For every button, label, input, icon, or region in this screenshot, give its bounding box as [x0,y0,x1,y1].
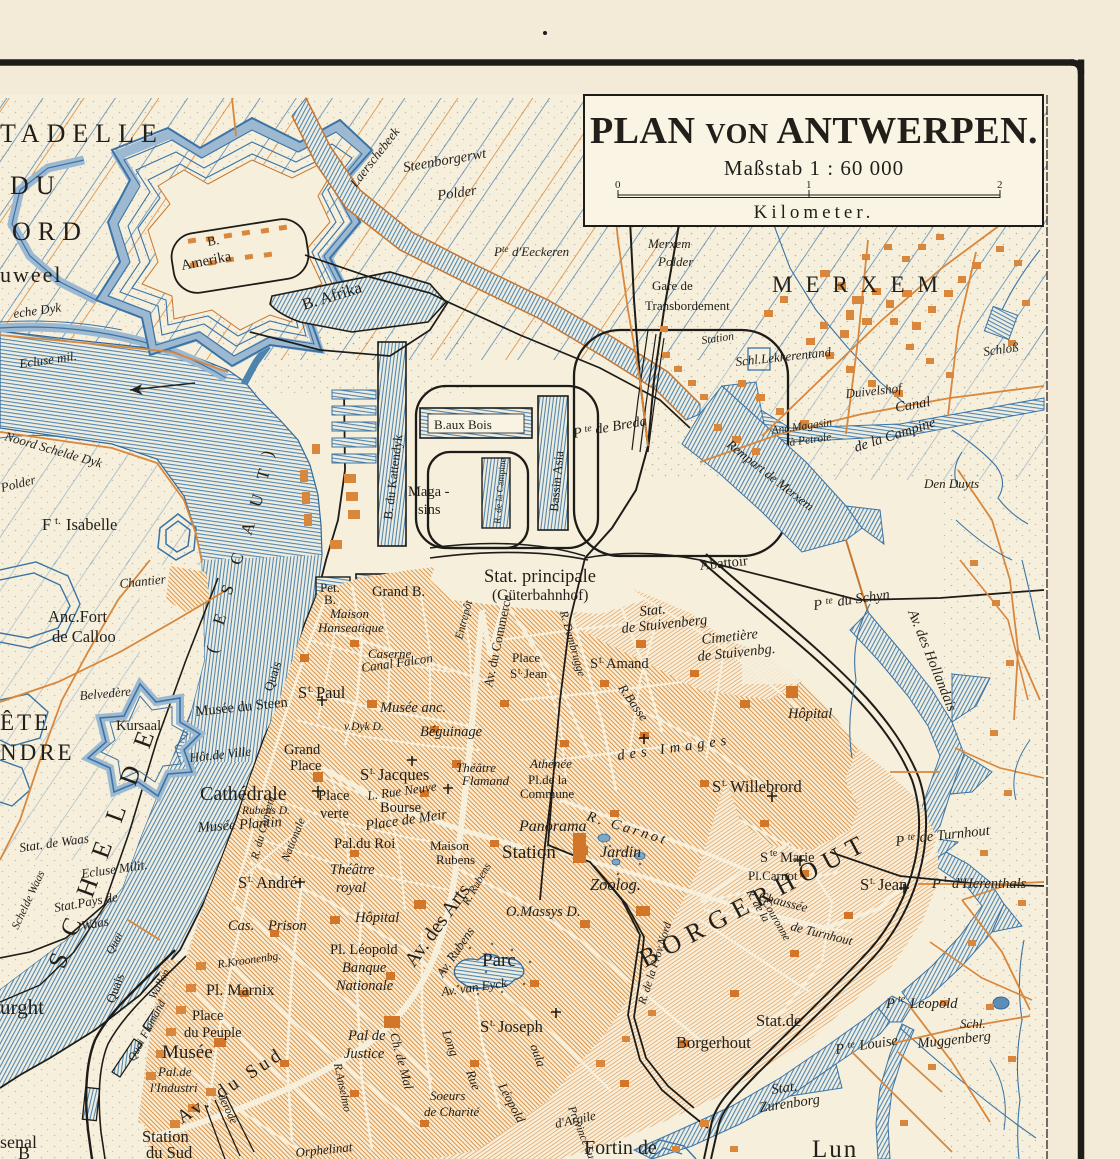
svg-text:Grand: Grand [284,742,321,758]
svg-text:B.aux Bois: B.aux Bois [434,417,492,432]
svg-text:Place: Place [318,788,349,804]
svg-text:Stat.de: Stat.de [756,1011,801,1030]
svg-text:Musée: Musée [162,1042,213,1063]
svg-text:Pal.de: Pal.de [157,1064,192,1079]
svg-text:Station: Station [502,842,556,863]
svg-text:t.: t. [518,666,523,676]
svg-text:Hôpital: Hôpital [354,910,399,926]
svg-text:du Sud: du Sud [146,1143,193,1159]
svg-text:ORD: ORD [12,217,88,246]
svg-text:1: 1 [806,179,812,191]
svg-text:de Charité: de Charité [424,1104,480,1119]
svg-text:t.: t. [599,655,604,666]
svg-text:d'Herenthals: d'Herenthals [952,876,1027,892]
svg-text:Amand: Amand [606,656,649,672]
svg-text:Place: Place [290,758,321,774]
svg-text:Béguinage: Béguinage [420,724,483,740]
svg-text:Parc: Parc [482,950,516,971]
svg-text:ÊTE: ÊTE [0,710,51,735]
svg-text:MERXEM: MERXEM [772,272,951,297]
svg-text:Jean: Jean [878,875,907,894]
svg-text:Transbordement: Transbordement [645,298,730,313]
svg-text:S: S [480,1017,489,1036]
svg-text:Banque: Banque [342,960,387,976]
svg-text:Maßstab 1 : 60 000: Maßstab 1 : 60 000 [724,156,904,180]
svg-text:verte: verte [320,806,349,822]
svg-text:Den Duyts: Den Duyts [923,476,979,491]
svg-text:DU: DU [10,171,62,200]
svg-text:urght: urght [0,995,44,1019]
svg-text:d'Eeckeren: d'Eeckeren [512,244,569,259]
svg-text:Athénée: Athénée [529,756,572,771]
svg-text:Maga -: Maga - [408,484,450,500]
svg-text:t.: t. [944,874,949,885]
svg-text:t.: t. [490,1018,495,1029]
svg-text:l'Industri: l'Industri [150,1080,198,1095]
svg-text:Grand B.: Grand B. [372,584,425,600]
svg-text:Isabelle: Isabelle [66,515,117,534]
svg-text:sins: sins [418,502,441,518]
svg-text:Panorama: Panorama [518,818,587,835]
svg-text:t.: t. [370,766,375,777]
svg-text:uweel: uweel [0,262,63,287]
svg-text:Place: Place [192,1008,223,1024]
svg-text:Musée anc.: Musée anc. [379,700,446,716]
svg-text:P: P [894,833,906,850]
svg-text:te: te [502,244,509,254]
svg-text:te: te [770,848,778,859]
svg-text:Jardin: Jardin [600,844,641,861]
svg-text:Théâtre: Théâtre [330,862,375,878]
svg-text:S: S [860,875,869,894]
svg-text:PLAN VON ANTWERPEN.: PLAN VON ANTWERPEN. [590,110,1038,152]
svg-text:Pal de: Pal de [347,1028,386,1044]
svg-text:S: S [238,873,247,892]
svg-text:Kursaal: Kursaal [116,718,161,734]
svg-text:te: te [898,994,906,1005]
svg-text:S: S [590,656,598,672]
svg-text:Lun: Lun [812,1136,858,1159]
svg-text:P: P [885,996,895,1012]
svg-text:t.: t. [248,874,253,885]
svg-text:Flamand: Flamand [461,773,509,788]
svg-text:Anc.Fort: Anc.Fort [48,607,108,626]
svg-text:S: S [510,666,517,681]
svg-text:Rubens: Rubens [436,852,475,867]
svg-text:du Peuple: du Peuple [184,1025,242,1041]
svg-text:de Calloo: de Calloo [52,627,116,646]
svg-text:Jean: Jean [524,666,548,681]
svg-text:Leopold: Leopold [909,996,958,1012]
svg-text:Cas.: Cas. [228,918,254,934]
svg-text:t.: t. [308,684,313,695]
svg-text:Justice: Justice [344,1046,385,1062]
svg-text:t.: t. [55,515,61,527]
svg-text:0: 0 [615,179,621,191]
svg-text:TADELLE: TADELLE [0,119,164,148]
svg-text:Paul: Paul [316,683,346,702]
svg-text:Marie: Marie [780,850,815,866]
svg-text:P: P [493,244,502,259]
svg-text:Pl. Léopold: Pl. Léopold [330,942,398,958]
svg-text:André: André [256,873,297,892]
svg-text:Hôpital: Hôpital [787,706,832,722]
svg-text:royal: royal [336,880,366,896]
svg-text:Pal.du Roi: Pal.du Roi [334,836,395,852]
svg-text:B: B [18,1143,30,1159]
svg-text:NDRE: NDRE [0,740,75,765]
svg-text:P: P [931,876,941,892]
svg-text:S: S [712,777,721,796]
svg-text:Nationale: Nationale [335,978,394,994]
svg-text:B.: B. [324,592,336,607]
svg-text:Polder: Polder [657,254,694,269]
svg-text:t.: t. [722,778,727,789]
svg-text:O.Massys D.: O.Massys D. [506,904,581,920]
svg-text:Stat. principale: Stat. principale [484,567,596,587]
svg-text:Joseph: Joseph [498,1017,544,1036]
svg-text:Maison: Maison [430,838,470,853]
svg-text:S: S [760,850,768,866]
svg-text:F: F [42,515,51,534]
svg-text:Prison: Prison [267,918,307,934]
svg-text:Pl. Marnix: Pl. Marnix [206,982,274,999]
svg-text:S: S [360,765,369,784]
svg-text:Pl.Carnot: Pl.Carnot [748,868,798,883]
svg-text:Maison: Maison [329,606,369,621]
svg-text:Place: Place [512,650,540,665]
svg-text:Willebrord: Willebrord [730,777,802,796]
svg-text:Hanseatique: Hanseatique [317,620,384,635]
svg-text:Commune: Commune [520,786,574,801]
svg-text:Pl.de la: Pl.de la [528,772,567,787]
svg-text:Soeurs: Soeurs [430,1088,465,1103]
svg-text:S: S [298,683,307,702]
svg-text:v.Dyk D.: v.Dyk D. [344,721,384,733]
svg-text:2: 2 [997,179,1003,191]
svg-text:Gare de: Gare de [652,278,693,293]
svg-text:t.: t. [870,876,875,887]
svg-text:Merxem: Merxem [647,236,691,251]
svg-text:Zoolog.: Zoolog. [590,875,641,894]
svg-text:Kilometer.: Kilometer. [754,202,875,223]
svg-text:Borgerhout: Borgerhout [676,1033,751,1052]
